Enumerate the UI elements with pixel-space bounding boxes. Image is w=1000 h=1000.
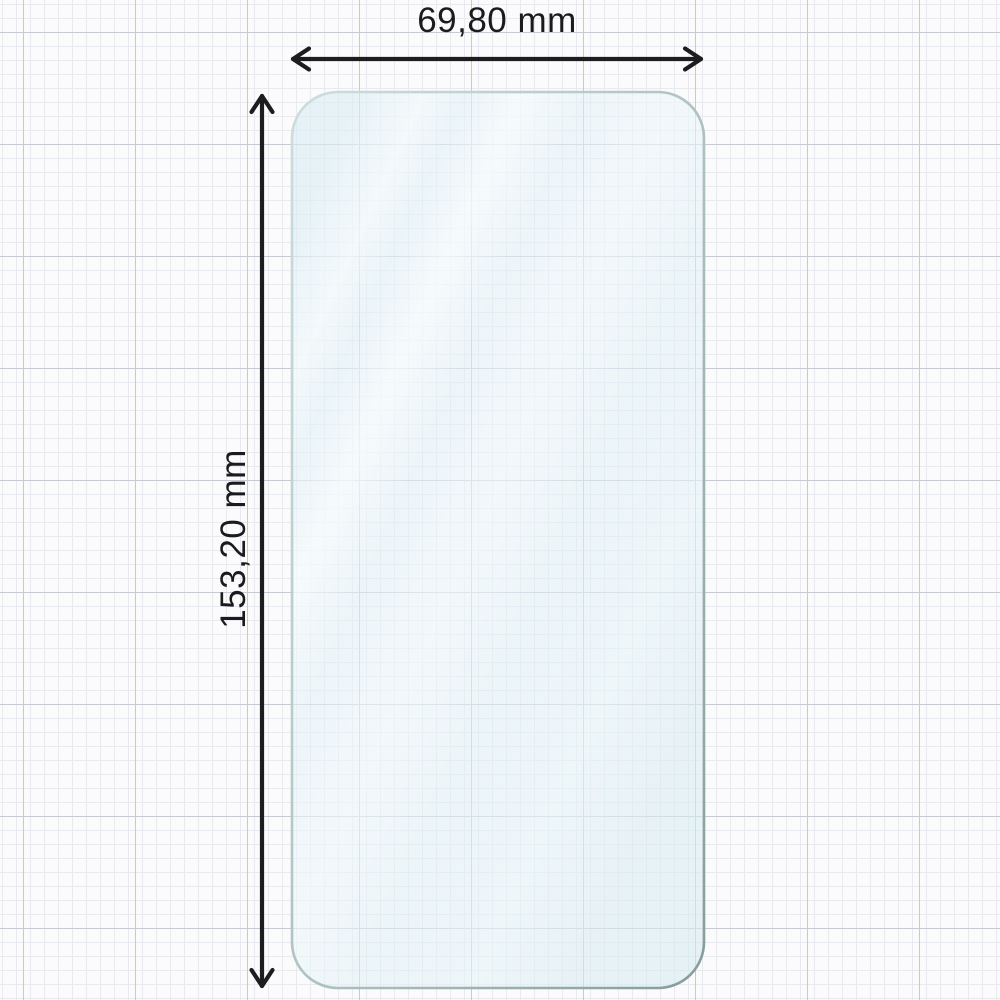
screen-protector-film (290, 90, 706, 990)
glass-reflection (294, 94, 702, 986)
vertical-dimension-arrow-icon (248, 88, 276, 994)
width-dimension-label: 69,80 mm (285, 2, 709, 41)
product-dimensions-figure: 69,80 mm 153,20 mm (0, 0, 1000, 1000)
horizontal-dimension-arrow-icon (285, 45, 709, 73)
